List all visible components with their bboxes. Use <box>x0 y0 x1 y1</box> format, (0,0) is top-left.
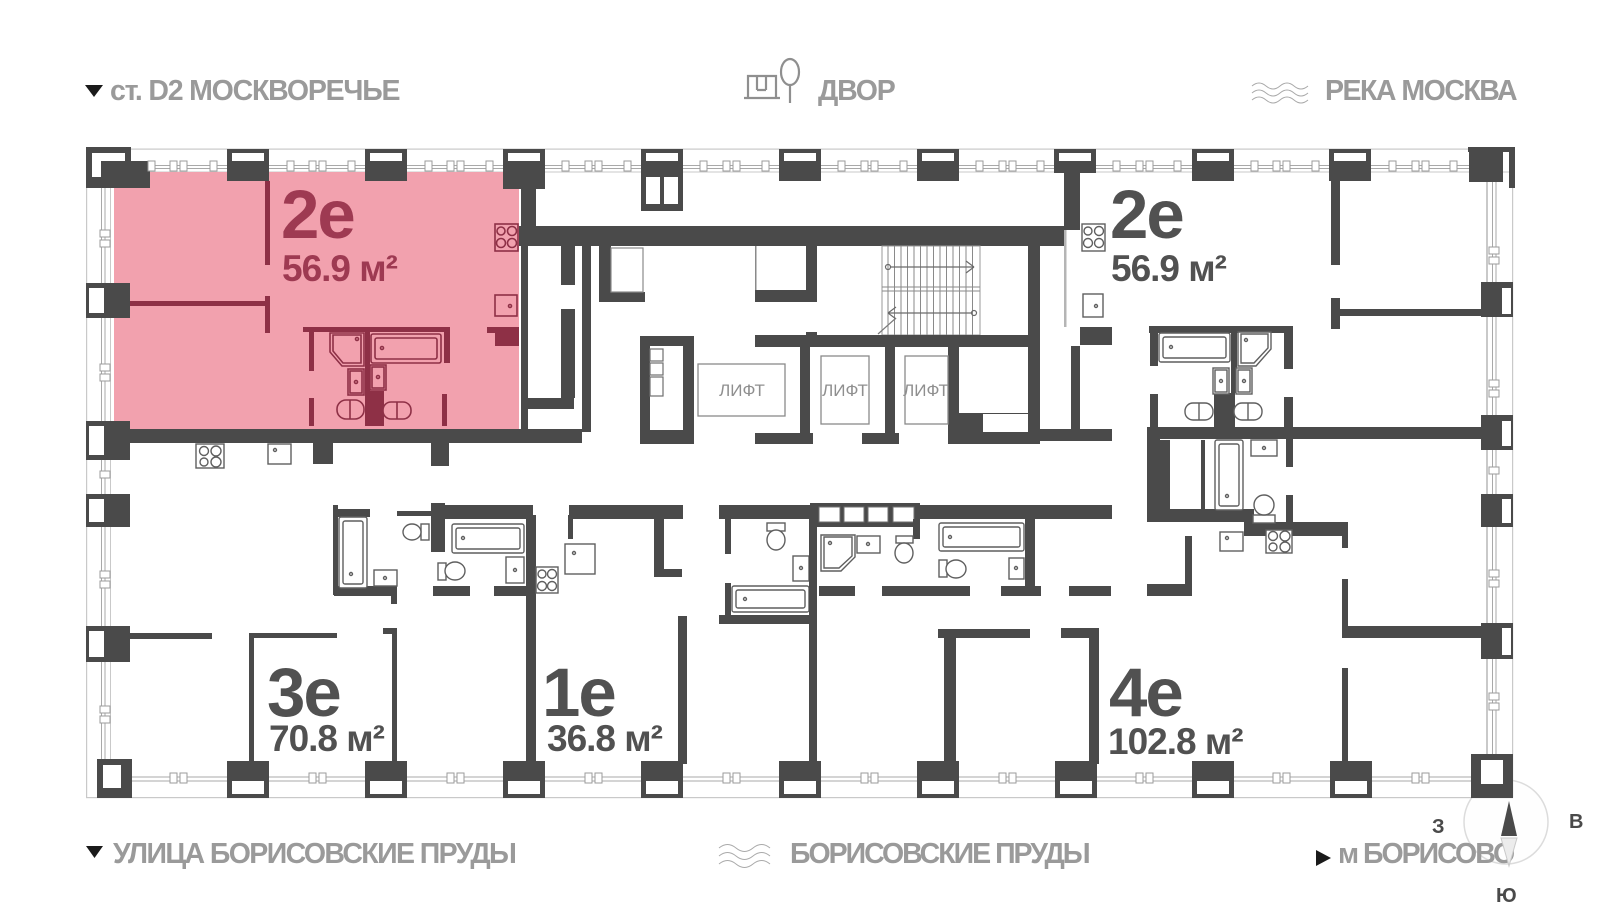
svg-text:Ю: Ю <box>1496 885 1517 907</box>
svg-text:2е: 2е <box>281 176 354 253</box>
svg-text:УЛИЦА БОРИСОВСКИЕ ПРУДЫ: УЛИЦА БОРИСОВСКИЕ ПРУДЫ <box>113 838 515 870</box>
svg-text:70.8 м²: 70.8 м² <box>269 718 385 759</box>
svg-text:2е: 2е <box>1110 176 1183 253</box>
svg-text:ст. D2 МОСКВОРЕЧЬЕ: ст. D2 МОСКВОРЕЧЬЕ <box>110 75 400 107</box>
svg-text:БОРИСОВСКИЕ ПРУДЫ: БОРИСОВСКИЕ ПРУДЫ <box>790 838 1089 870</box>
svg-text:ДВОР: ДВОР <box>818 75 896 107</box>
svg-text:В: В <box>1569 811 1583 833</box>
svg-text:м БОРИСОВО: м БОРИСОВО <box>1338 838 1514 870</box>
svg-text:4е: 4е <box>1109 654 1182 731</box>
svg-text:102.8 м²: 102.8 м² <box>1108 721 1243 762</box>
svg-text:56.9 м²: 56.9 м² <box>1111 248 1227 289</box>
svg-text:ЛИФТ: ЛИФТ <box>822 381 868 400</box>
svg-text:36.8 м²: 36.8 м² <box>547 718 663 759</box>
svg-text:РЕКА МОСКВА: РЕКА МОСКВА <box>1325 75 1517 107</box>
svg-text:З: З <box>1432 816 1445 838</box>
svg-text:ЛИФТ: ЛИФТ <box>719 381 765 400</box>
svg-text:56.9 м²: 56.9 м² <box>282 248 398 289</box>
svg-text:ЛИФТ: ЛИФТ <box>903 381 949 400</box>
